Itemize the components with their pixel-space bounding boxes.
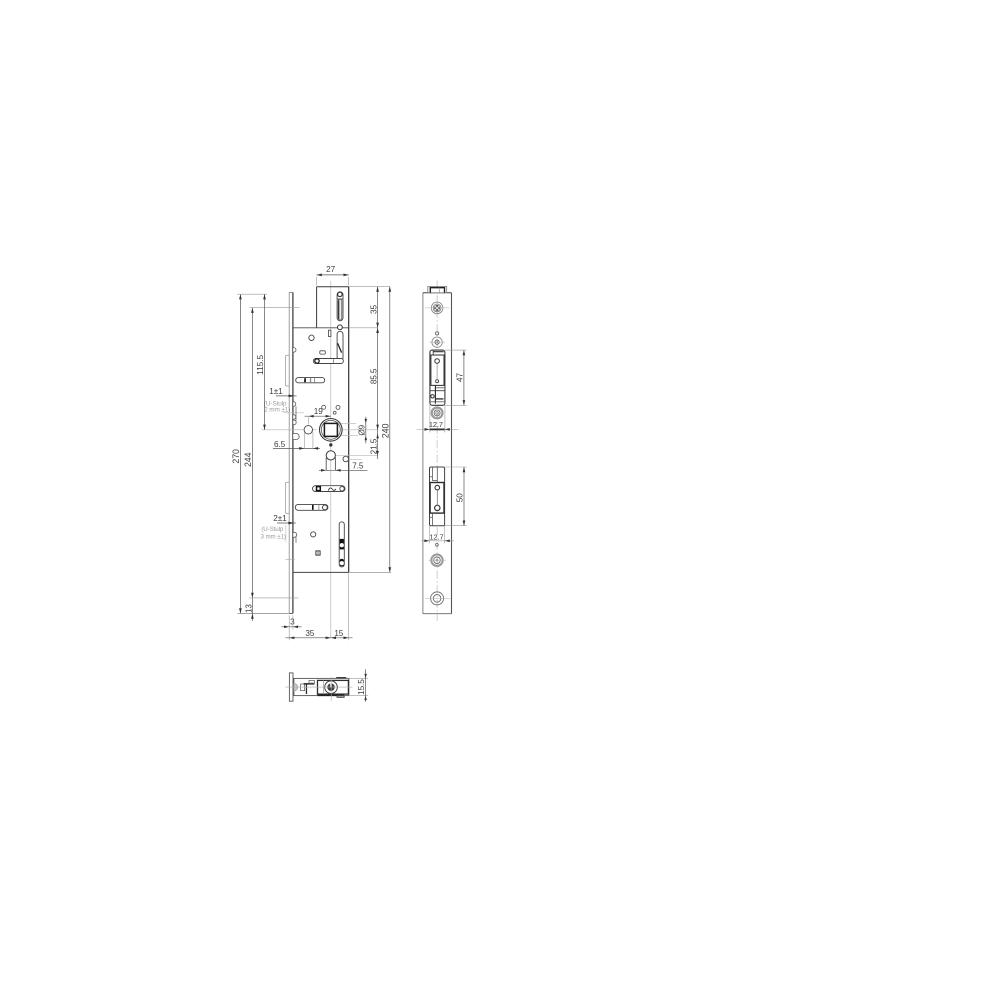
svg-text:3: 3 [290, 618, 295, 627]
svg-text:244: 244 [243, 452, 253, 467]
svg-text:50: 50 [456, 493, 465, 502]
svg-text:15: 15 [334, 629, 343, 638]
svg-text:3 mm ±1): 3 mm ±1) [261, 533, 286, 540]
svg-text:2±1: 2±1 [273, 514, 287, 523]
svg-text:15.5: 15.5 [357, 679, 366, 695]
svg-text:115.5: 115.5 [255, 355, 265, 375]
svg-text:240: 240 [380, 423, 390, 438]
svg-text:47: 47 [455, 373, 464, 382]
svg-text:21.5: 21.5 [369, 438, 378, 454]
svg-text:85.5: 85.5 [369, 368, 378, 384]
svg-text:13: 13 [244, 604, 253, 613]
svg-text:35: 35 [369, 305, 378, 314]
svg-text:270: 270 [231, 449, 241, 464]
svg-text:7.5: 7.5 [352, 462, 364, 471]
svg-text:1±1: 1±1 [269, 387, 283, 396]
svg-text:27: 27 [326, 265, 335, 274]
svg-text:6.5: 6.5 [274, 440, 286, 449]
svg-text:(U-Stulp: (U-Stulp [261, 526, 284, 533]
svg-text:Ø9: Ø9 [358, 424, 367, 435]
svg-text:12.7: 12.7 [429, 420, 443, 429]
svg-text:12.7: 12.7 [430, 532, 444, 541]
svg-text:35: 35 [305, 629, 314, 638]
